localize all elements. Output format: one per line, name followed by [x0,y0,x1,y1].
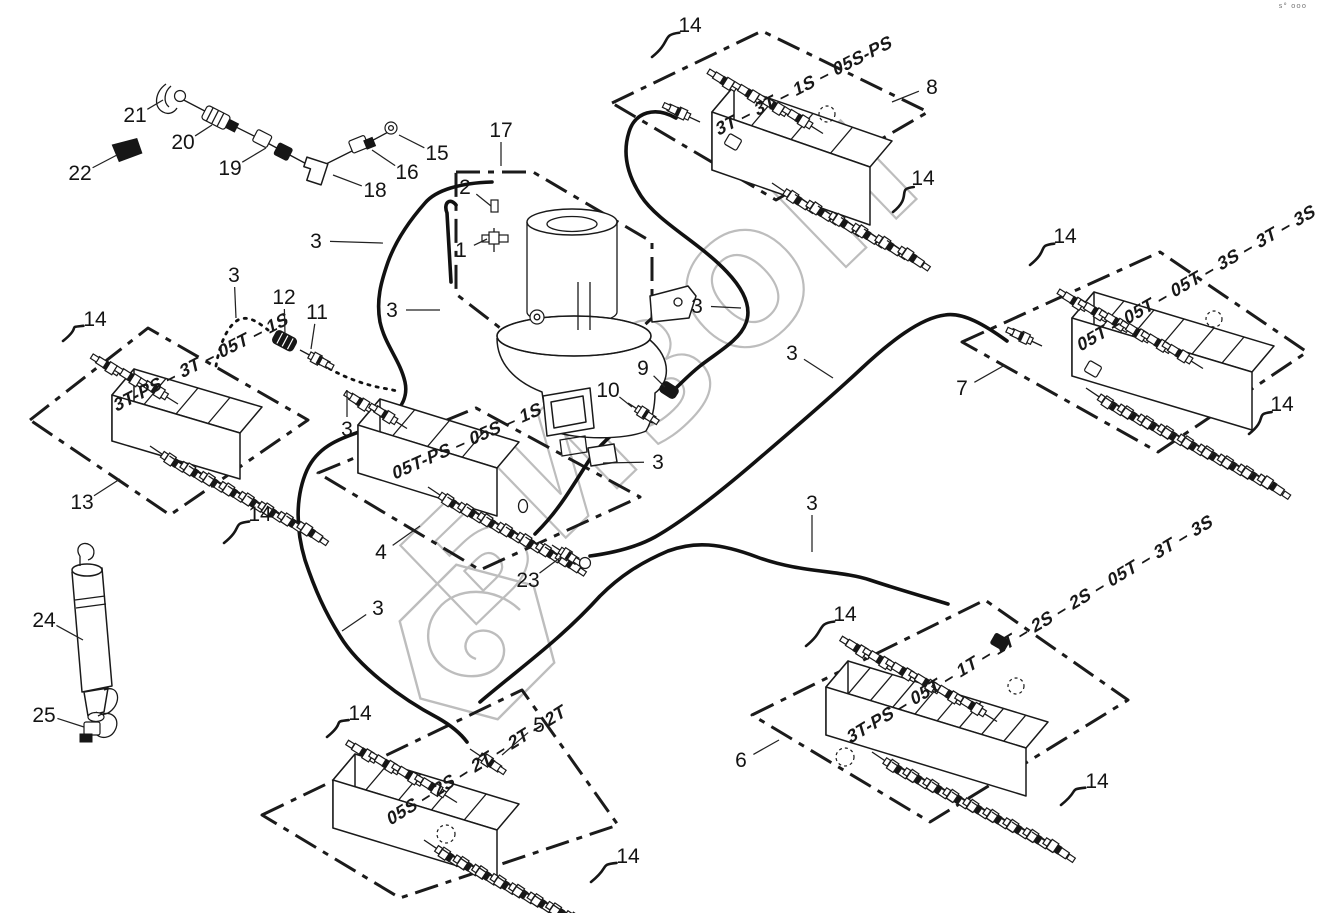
callout-number: 8 [926,76,938,99]
leader-line [147,100,163,109]
callout-20: 20 [171,125,212,154]
callout-number: 3 [786,342,798,365]
leader-line [804,359,833,378]
leader-line [753,740,779,754]
callout-3: 3 [342,597,384,631]
callout-number: 22 [68,162,91,185]
central-lubrication-parts-diagram: БИЗОН3T – 3T – 1S – 05S-PS05T – 05T – 05… [0,0,1325,913]
callout-number: 24 [32,609,56,632]
callout-14: 14 [591,845,640,882]
leader-line [94,479,120,496]
callout-number: 7 [956,377,968,400]
callout-number: 14 [248,503,272,526]
grease-fitting-icon [298,345,336,372]
callout-number: 3 [652,451,664,474]
corner-mark: s° ooo [1279,2,1307,10]
callout-19: 19 [218,148,266,180]
callout-14: 14 [63,308,107,341]
callout-7: 7 [956,365,1005,400]
callout-number: 5 [533,714,545,737]
callout-number: 14 [348,702,372,725]
callout-number: 4 [375,541,387,564]
callout-number: 9 [637,357,649,380]
callout-number: 23 [516,569,539,592]
leader-line [806,622,834,646]
leader-line [342,614,366,631]
callout-number: 16 [395,161,418,184]
callout-number: 14 [1053,225,1077,248]
callout-3: 3 [806,492,818,552]
leader-line [195,125,212,136]
part-2-fitting [491,200,498,212]
callout-number: 2 [459,176,471,199]
leader-line [284,309,285,334]
callout-number: 25 [32,704,55,727]
callout-17: 17 [489,119,512,166]
leader-line [330,241,383,243]
callout-number: 20 [171,131,194,154]
part-21-clamp [157,84,177,113]
callout-number: 3 [806,492,818,515]
leader-line [372,150,395,166]
callout-number: 18 [363,179,386,202]
leader-line [57,718,84,727]
leader-line [974,365,1005,382]
leader-line [311,324,315,349]
parts-diagram-page: БИЗОН3T – 3T – 1S – 05S-PS05T – 05T – 05… [0,0,1325,913]
callout-14: 14 [1061,770,1109,805]
callout-number: 14 [1085,770,1109,793]
leader-line [591,863,617,882]
callout-number: 3 [386,299,398,322]
dotted-hose-2 [322,364,397,391]
callout-14: 14 [1249,393,1294,434]
dashed-port-circle [1206,311,1222,327]
callout-number: 3 [228,264,240,287]
callout-number: 21 [123,104,146,127]
leader-line [652,33,679,57]
leader-line [235,287,236,318]
callout-3: 3 [386,299,440,322]
leader-line [603,462,644,463]
callout-number: 12 [272,286,295,309]
part-18-elbow [300,157,328,185]
callout-number: 19 [218,157,241,180]
callout-number: 11 [306,301,328,324]
part-19-nut [252,129,272,148]
callout-14: 14 [327,702,372,737]
leader-line [333,175,362,186]
callout-number: 10 [596,379,619,402]
callout-22: 22 [68,155,117,185]
callout-number: 3 [372,597,384,620]
leader-line [1030,244,1054,265]
callout-number: 17 [489,119,512,142]
callout-number: 14 [911,167,935,190]
callout-25: 25 [32,704,84,727]
callout-number: 6 [735,749,747,772]
part-23-tip [580,558,591,569]
leader-line [399,135,424,148]
grease-fitting-icon [1005,325,1044,351]
callout-number: 3 [691,295,703,318]
callout-number: 1 [455,239,467,262]
callout-3: 3 [310,230,383,253]
callout-number: 15 [425,142,448,165]
callout-number: 3 [310,230,322,253]
part-20-fitting [201,105,240,135]
leader-line [224,522,249,543]
callout-number: 14 [1270,393,1294,416]
leader-line [93,155,117,168]
callout-8: 8 [892,76,938,102]
leader-line [242,148,266,162]
part-24-cartridge [72,543,118,721]
leader-line [476,194,491,206]
dashed-port-circle [836,748,854,766]
callout-number: 14 [678,14,702,37]
callout-21: 21 [123,100,163,127]
block-5-distributor: 05S – 2S – 2T – 2T – 2T [333,699,598,913]
callout-6: 6 [735,740,779,772]
leader-line [63,326,83,341]
callout-number: 14 [83,308,107,331]
part-15-washer [385,122,397,134]
dashed-port-circle [1008,678,1024,694]
callout-number: 13 [70,491,93,514]
leader-line [1061,788,1085,805]
callout-14: 14 [224,503,272,543]
callout-18: 18 [333,175,387,202]
callout-number: 3 [341,418,353,441]
block-6-section-labels: 3T-PS – 05T – 1T – 1T – 2S – 2S – 05T – … [845,509,1215,748]
part-22-plug [111,137,143,163]
callout-number: 14 [833,603,857,626]
callout-14: 14 [1030,225,1077,265]
callout-13: 13 [70,479,120,514]
block-6-distributor: 3T-PS – 05T – 1T – 1T – 2S – 2S – 05T – … [826,509,1215,865]
callout-14: 14 [652,14,702,57]
leader-line [327,720,349,737]
callout-11: 11 [306,301,328,349]
callout-number: 14 [616,845,640,868]
callout-3: 3 [228,264,240,318]
